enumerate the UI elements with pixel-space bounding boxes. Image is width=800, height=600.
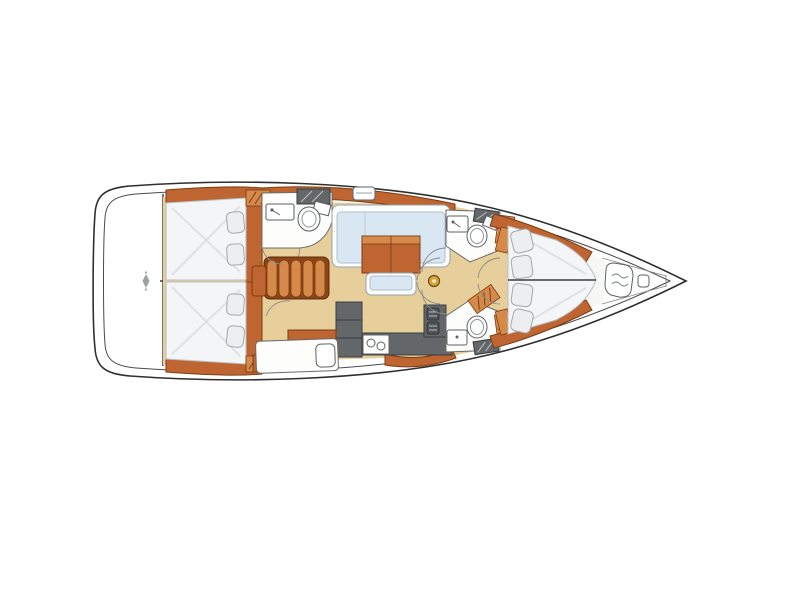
bow-fitting — [638, 275, 649, 287]
pillow — [226, 325, 245, 348]
pillow — [511, 283, 534, 308]
mast-post — [429, 276, 440, 287]
yacht-floor-plan-canvas — [0, 0, 800, 600]
pillow — [511, 255, 534, 280]
washbasin — [266, 204, 294, 220]
stove — [424, 305, 446, 337]
washbasin — [447, 330, 467, 345]
pillow — [226, 243, 244, 265]
saloon-table — [362, 236, 420, 273]
anchor-locker — [605, 263, 633, 297]
washbasin — [447, 216, 468, 232]
pillow — [226, 293, 244, 315]
fridge-unit — [336, 302, 362, 357]
galley-sinks — [363, 335, 389, 354]
yacht-floor-plan — [0, 0, 800, 600]
toilet — [467, 316, 487, 338]
shower-tray — [297, 189, 330, 204]
pillow — [226, 211, 245, 234]
